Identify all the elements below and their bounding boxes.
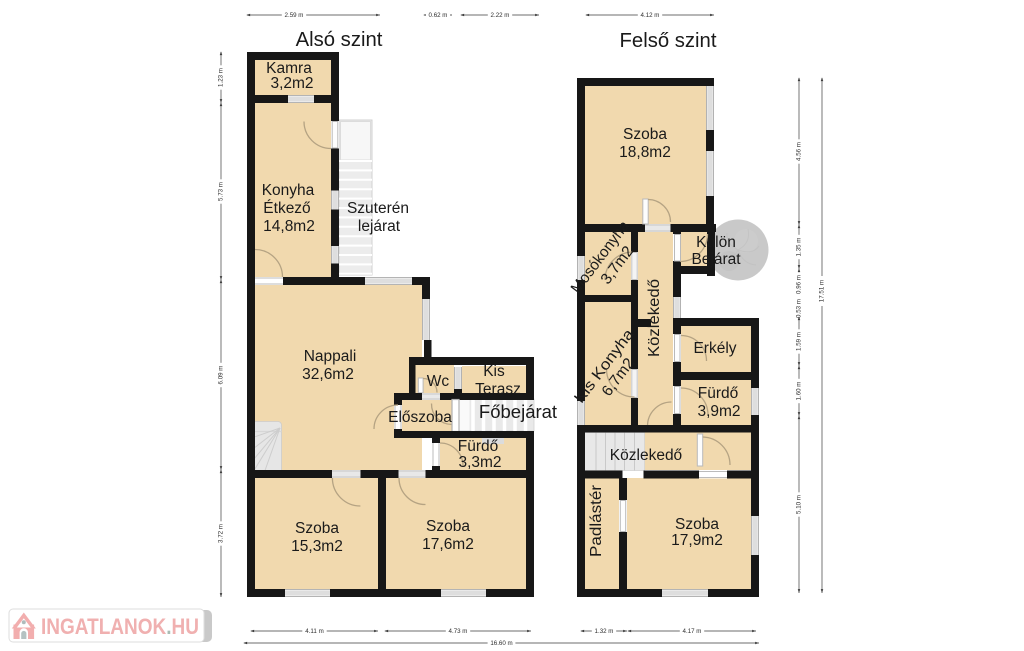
svg-text:14,8m2: 14,8m2 <box>263 218 315 235</box>
svg-text:Fürdő: Fürdő <box>698 385 739 402</box>
svg-text:1.59 m: 1.59 m <box>796 332 803 351</box>
svg-text:Padlástér: Padlástér <box>588 485 605 557</box>
svg-text:3,2m2: 3,2m2 <box>270 75 313 92</box>
svg-text:Előszoba: Előszoba <box>388 409 452 426</box>
svg-text:4.73 m: 4.73 m <box>449 628 468 635</box>
svg-text:Terasz: Terasz <box>475 381 521 398</box>
svg-text:17,6m2: 17,6m2 <box>422 536 474 553</box>
svg-text:Bejárat: Bejárat <box>691 251 741 268</box>
svg-text:Wc: Wc <box>427 373 450 390</box>
svg-text:17.51 m: 17.51 m <box>819 280 826 302</box>
svg-text:5.10 m: 5.10 m <box>796 495 803 514</box>
svg-text:18,8m2: 18,8m2 <box>619 144 671 161</box>
svg-text:6.09 m: 6.09 m <box>218 366 225 385</box>
svg-text:Szoba: Szoba <box>295 520 339 537</box>
svg-text:Konyha: Konyha <box>262 182 315 199</box>
svg-text:0.62 m: 0.62 m <box>429 12 448 19</box>
svg-text:Fürdő: Fürdő <box>458 438 499 455</box>
svg-text:Alsó szint: Alsó szint <box>296 29 383 51</box>
svg-text:Felső szint: Felső szint <box>620 30 717 52</box>
svg-text:16.60 m: 16.60 m <box>490 640 512 647</box>
svg-text:17,9m2: 17,9m2 <box>671 532 723 549</box>
svg-text:3,3m2: 3,3m2 <box>458 454 501 471</box>
svg-text:5.73 m: 5.73 m <box>218 182 225 201</box>
svg-text:4.11 m: 4.11 m <box>305 628 323 635</box>
svg-text:Nappali: Nappali <box>304 348 357 365</box>
svg-text:Szoba: Szoba <box>623 126 667 143</box>
svg-text:4.12 m: 4.12 m <box>641 12 660 19</box>
svg-text:2.59 m: 2.59 m <box>285 12 304 19</box>
svg-text:Külön: Külön <box>696 234 736 251</box>
svg-text:0.53 m: 0.53 m <box>796 299 803 318</box>
svg-text:Szoba: Szoba <box>426 518 470 535</box>
svg-text:lejárat: lejárat <box>358 218 401 235</box>
svg-text:1.35 m: 1.35 m <box>796 238 803 257</box>
svg-text:Közlekedő: Közlekedő <box>610 447 682 464</box>
svg-text:Főbejárat: Főbejárat <box>479 401 557 422</box>
svg-text:Kis: Kis <box>483 363 505 380</box>
svg-text:3.72 m: 3.72 m <box>218 524 225 543</box>
svg-text:Erkély: Erkély <box>693 340 736 357</box>
svg-text:4.17 m: 4.17 m <box>683 628 702 635</box>
svg-text:INGATLANOK.HU: INGATLANOK.HU <box>41 614 199 639</box>
svg-text:1.60 m: 1.60 m <box>796 382 803 401</box>
svg-text:15,3m2: 15,3m2 <box>291 538 343 555</box>
svg-text:2.22 m: 2.22 m <box>491 12 510 19</box>
svg-text:Szuterén: Szuterén <box>347 200 409 217</box>
svg-text:Közlekedő: Közlekedő <box>646 279 663 357</box>
svg-text:3,9m2: 3,9m2 <box>697 403 740 420</box>
svg-text:1.32 m: 1.32 m <box>595 628 614 635</box>
svg-text:Étkező: Étkező <box>263 200 310 217</box>
svg-text:Szoba: Szoba <box>675 516 719 533</box>
svg-text:32,6m2: 32,6m2 <box>302 366 354 383</box>
svg-text:0.96 m: 0.96 m <box>796 275 803 294</box>
svg-text:1.23 m: 1.23 m <box>218 68 225 87</box>
svg-text:4.56 m: 4.56 m <box>796 142 803 161</box>
